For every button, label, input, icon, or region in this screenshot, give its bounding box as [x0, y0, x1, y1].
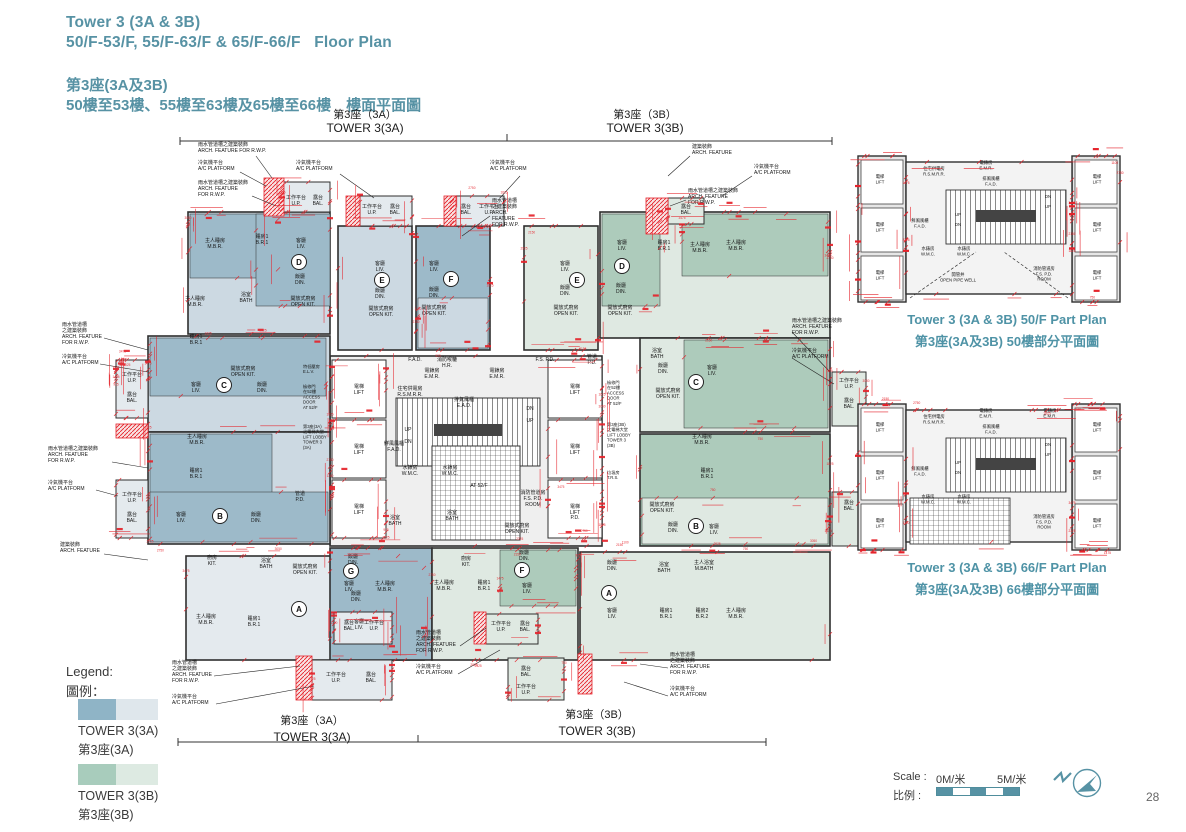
svg-text:1625: 1625: [598, 392, 605, 396]
svg-text:1825: 1825: [1068, 249, 1075, 253]
svg-text:電梯LIFT: 電梯LIFT: [876, 269, 885, 280]
svg-text:電梯LIFT: 電梯LIFT: [570, 443, 580, 456]
svg-text:雨水管道槽之建築裝飾ARCH.FEATUREFOR R.W.: 雨水管道槽之建築裝飾ARCH.FEATUREFOR R.W.P.: [492, 197, 519, 228]
bracket-top: [180, 134, 832, 145]
svg-text:睡房1B.R.1: 睡房1B.R.1: [248, 615, 261, 628]
svg-text:電梯LIFT: 電梯LIFT: [1093, 173, 1102, 184]
svg-text:DN: DN: [955, 222, 961, 227]
svg-text:925: 925: [383, 528, 389, 532]
svg-text:主人睡房M.B.R.: 主人睡房M.B.R.: [692, 433, 712, 446]
svg-text:露台BAL.: 露台BAL.: [521, 665, 532, 678]
svg-text:1475: 1475: [1104, 551, 1111, 555]
svg-text:1100: 1100: [1111, 161, 1118, 165]
svg-text:UP: UP: [527, 418, 535, 424]
svg-text:浴室BATH: 浴室BATH: [389, 514, 402, 527]
svg-text:主人睡房M.B.R.: 主人睡房M.B.R.: [205, 237, 225, 250]
svg-text:2925: 2925: [714, 542, 721, 546]
svg-text:2325: 2325: [1068, 529, 1075, 533]
svg-text:925: 925: [575, 553, 581, 557]
floor-plan-page: 主人睡房M.B.R.睡房1B.R.1客廳LIV.飯廳DIN.浴室BATH開放式廚…: [0, 0, 1186, 832]
bottom-label-tower3b-en: TOWER 3(3B): [517, 724, 677, 738]
svg-text:電梯LIFT: 電梯LIFT: [1093, 269, 1102, 280]
svg-text:2150: 2150: [1068, 232, 1075, 236]
svg-text:客廳LIV.: 客廳LIV.: [296, 237, 306, 250]
svg-text:AT 52/F: AT 52/F: [470, 483, 487, 489]
svg-text:電梯LIFT: 電梯LIFT: [876, 517, 885, 528]
svg-text:露台BAL.: 露台BAL.: [127, 391, 138, 404]
legend-swatch-tower3b-dark: [78, 764, 116, 785]
svg-text:F: F: [520, 566, 525, 575]
svg-text:管道P.D.: 管道P.D.: [295, 490, 305, 503]
legend-title-en: Legend:: [66, 664, 113, 679]
svg-text:冷氣機平台A/C PLATFORM: 冷氣機平台A/C PLATFORM: [62, 353, 99, 366]
svg-text:電梯LIFT: 電梯LIFT: [876, 221, 885, 232]
part-plan-50f-caption-zh: 第3座(3A及3B) 50樓部分平面圖: [842, 331, 1172, 350]
svg-text:住宅供電房R.S.M.R.R.: 住宅供電房R.S.M.R.R.: [923, 413, 945, 424]
svg-text:電梯LIFT: 電梯LIFT: [354, 503, 364, 516]
svg-text:客廳LIV.: 客廳LIV.: [707, 364, 717, 377]
svg-text:開放式廚房OPEN KIT.: 開放式廚房OPEN KIT.: [649, 501, 674, 514]
svg-text:開放式廚房OPEN KIT.: 開放式廚房OPEN KIT.: [607, 304, 632, 317]
svg-text:2150: 2150: [616, 543, 623, 547]
unit-circle-D: D: [292, 255, 307, 270]
scale-label-zh: 比例 :: [893, 787, 921, 803]
svg-text:客廳LIV.: 客廳LIV.: [560, 260, 570, 273]
svg-text:睡房1B.R.1: 睡房1B.R.1: [190, 333, 203, 346]
svg-text:1825: 1825: [326, 412, 333, 416]
svg-text:主人睡房M.B.R.: 主人睡房M.B.R.: [187, 433, 207, 446]
svg-text:飯廳DIN.: 飯廳DIN.: [616, 282, 626, 295]
svg-text:電錶房E.M.R.: 電錶房E.M.R.: [424, 367, 439, 380]
scale-bar-segment: [970, 788, 986, 795]
svg-text:2325: 2325: [902, 238, 909, 242]
svg-text:2750: 2750: [468, 186, 475, 190]
svg-text:建築裝飾ARCH. FEATURE: 建築裝飾ARCH. FEATURE: [60, 541, 101, 554]
svg-text:睡房1B.R.1: 睡房1B.R.1: [660, 607, 673, 620]
bottom-label-tower3a-en: TOWER 3(3A): [232, 730, 392, 744]
svg-text:露台BAL.: 露台BAL.: [844, 499, 855, 512]
svg-text:雨水管道槽之建築裝飾ARCH. FEATUREFOR R.W: 雨水管道槽之建築裝飾ARCH. FEATUREFOR R.W.P.: [198, 179, 248, 198]
svg-text:A: A: [296, 605, 302, 614]
svg-text:E: E: [379, 276, 385, 285]
svg-text:1825: 1825: [598, 523, 605, 527]
top-label-tower3b-zh: 第3座（3B）: [565, 106, 725, 122]
svg-text:主人睡房M.B.R.: 主人睡房M.B.R.: [196, 613, 216, 626]
svg-text:客廳LIV.: 客廳LIV.: [429, 260, 439, 273]
svg-text:D: D: [619, 262, 625, 271]
svg-text:2750: 2750: [913, 401, 920, 405]
top-label-tower3b-en: TOWER 3(3B): [565, 121, 725, 135]
unit-circle-A: A: [292, 602, 307, 617]
svg-text:750: 750: [743, 547, 749, 551]
svg-text:開放式廚房OPEN KIT.: 開放式廚房OPEN KIT.: [230, 365, 255, 378]
svg-text:主人睡房M.B.R.: 主人睡房M.B.R.: [726, 239, 746, 252]
unit-circle-F: F: [515, 563, 530, 578]
scale-bar-segment: [1003, 788, 1019, 795]
svg-text:飯廳DIN.: 飯廳DIN.: [607, 559, 617, 572]
svg-text:電梯LIFT: 電梯LIFT: [1093, 421, 1102, 432]
svg-text:電梯LIFT: 電梯LIFT: [876, 173, 885, 184]
svg-text:電梯LIFT: 電梯LIFT: [1093, 221, 1102, 232]
svg-text:G: G: [348, 567, 354, 576]
svg-text:冷氣機平台A/C PLATFORM: 冷氣機平台A/C PLATFORM: [490, 159, 527, 172]
svg-text:客廳LIV.: 客廳LIV.: [709, 523, 719, 536]
svg-text:750: 750: [758, 437, 764, 441]
page-title-en-line2: 50/F-53/F, 55/F-63/F & 65/F-66/F Floor P…: [66, 34, 392, 52]
svg-text:飯廳DIN.: 飯廳DIN.: [658, 362, 668, 375]
svg-text:冷氣機平台A/C PLATFORM: 冷氣機平台A/C PLATFORM: [198, 159, 235, 172]
unit-circle-D: D: [615, 259, 630, 274]
svg-text:2325: 2325: [308, 677, 315, 681]
unit-circle-C: C: [217, 378, 232, 393]
svg-text:睡房2B.R.2: 睡房2B.R.2: [696, 607, 709, 620]
svg-text:UP: UP: [1045, 452, 1051, 457]
part-plan-50f-caption: Tower 3 (3A & 3B) 50/F Part Plan 第3座(3A及…: [842, 312, 1172, 350]
svg-text:睡房1B.R.1: 睡房1B.R.1: [256, 233, 269, 246]
svg-text:1475: 1475: [824, 529, 831, 533]
scale-bar-segment: [937, 788, 953, 795]
svg-text:E: E: [574, 276, 580, 285]
svg-text:2750: 2750: [157, 549, 164, 553]
svg-text:客廳LIV.: 客廳LIV.: [344, 580, 354, 593]
unit-circle-G: G: [344, 564, 359, 579]
svg-text:2925: 2925: [520, 247, 527, 251]
svg-text:1475: 1475: [144, 362, 151, 366]
svg-text:2925: 2925: [146, 539, 153, 543]
svg-text:3050: 3050: [810, 539, 817, 543]
svg-text:冷氣機平台A/C PLATFORM: 冷氣機平台A/C PLATFORM: [48, 479, 85, 492]
svg-text:水錶房W.M.C.: 水錶房W.M.C.: [957, 493, 971, 504]
svg-text:露台BAL.: 露台BAL.: [313, 194, 324, 207]
unit-circle-E: E: [375, 273, 390, 288]
svg-text:飯廳DIN.: 飯廳DIN.: [560, 284, 570, 297]
svg-text:客廳LIV.: 客廳LIV.: [617, 239, 627, 252]
svg-text:F.S. P.D.: F.S. P.D.: [535, 357, 554, 363]
svg-text:F.A.D.: F.A.D.: [408, 357, 422, 363]
svg-text:750: 750: [561, 661, 567, 665]
svg-text:2325: 2325: [260, 329, 267, 333]
svg-text:925: 925: [435, 354, 441, 358]
svg-text:冷氣機平台A/C PLATFORM: 冷氣機平台A/C PLATFORM: [172, 693, 209, 706]
svg-text:廚房KIT.: 廚房KIT.: [461, 555, 471, 568]
svg-text:3050: 3050: [184, 216, 191, 220]
svg-text:主人睡房M.B.R.: 主人睡房M.B.R.: [375, 580, 395, 593]
unit-circle-C: C: [689, 375, 704, 390]
legend-title-zh: 圖例：: [66, 681, 105, 700]
svg-text:客廳LIV.: 客廳LIV.: [354, 618, 364, 631]
page-number: 28: [1146, 790, 1159, 804]
svg-text:飯廳DIN.: 飯廳DIN.: [295, 273, 305, 286]
svg-text:客廳LIV.: 客廳LIV.: [191, 381, 201, 394]
svg-text:冷氣機平台A/C PLATFORM: 冷氣機平台A/C PLATFORM: [754, 163, 791, 176]
svg-text:750: 750: [710, 488, 716, 492]
svg-text:垃圾房T.R.S.: 垃圾房T.R.S.: [607, 469, 620, 480]
svg-text:開放式廚房OPEN KIT.: 開放式廚房OPEN KIT.: [655, 387, 680, 400]
legend-label-tower3b-zh: 第3座(3B): [78, 804, 134, 823]
svg-text:2925: 2925: [470, 663, 477, 667]
svg-text:飯廳DIN.: 飯廳DIN.: [257, 381, 267, 394]
svg-text:廚房KIT.: 廚房KIT.: [207, 554, 217, 567]
svg-text:1100: 1100: [327, 474, 334, 478]
legend-label-tower3a-zh: 第3座(3A): [78, 739, 134, 758]
north-compass-icon: [1054, 770, 1101, 797]
svg-text:電梯LIFT: 電梯LIFT: [1093, 517, 1102, 528]
svg-text:1100: 1100: [113, 366, 120, 370]
page-title-zh-line1: 第3座(3A及3B): [66, 74, 168, 95]
svg-text:露台BAL.: 露台BAL.: [844, 397, 855, 410]
svg-text:電梯LIFT: 電梯LIFT: [354, 383, 364, 396]
svg-text:睡房1B.R.1: 睡房1B.R.1: [701, 467, 714, 480]
svg-text:1100: 1100: [331, 621, 338, 625]
legend-swatch-tower3b: [78, 764, 158, 785]
scale-bar-segment: [986, 788, 1002, 795]
part-plan-50f: 電梯LIFT電梯LIFT電梯LIFT電梯LIFT電梯LIFT電梯LIFT住宅供電…: [849, 148, 1127, 308]
legend-swatch-tower3a-light: [116, 699, 158, 720]
svg-text:主人睡房M.B.R.: 主人睡房M.B.R.: [690, 241, 710, 254]
scale-start-value: 0M/米: [936, 771, 965, 787]
svg-text:P.D.: P.D.: [570, 515, 579, 521]
top-label-tower3a-en: TOWER 3(3A): [285, 121, 445, 135]
svg-text:UP: UP: [955, 212, 961, 217]
svg-text:DN: DN: [404, 439, 412, 445]
svg-text:1475: 1475: [496, 576, 503, 580]
svg-text:3475: 3475: [1068, 501, 1075, 505]
part-plan-66f-caption-en: Tower 3 (3A & 3B) 66/F Part Plan: [842, 560, 1172, 575]
svg-text:雨水管道槽之建築裝飾ARCH. FEATUREFOR R.W: 雨水管道槽之建築裝飾ARCH. FEATUREFOR R.W.P.: [48, 445, 98, 464]
svg-text:雨水管道槽之建築裝飾ARCH. FEATUREFOR R.W: 雨水管道槽之建築裝飾ARCH. FEATUREFOR R.W.P.: [792, 317, 842, 336]
scale-end-value: 5M/米: [997, 771, 1026, 787]
svg-text:浴室BATH: 浴室BATH: [446, 509, 459, 522]
svg-text:第3座(3B)之電梯大堂LIFT LOBBYTOWER 3(: 第3座(3B)之電梯大堂LIFT LOBBYTOWER 3(3B): [607, 421, 631, 448]
svg-text:露台BAL.: 露台BAL.: [344, 619, 355, 632]
svg-text:開放式廚房OPEN KIT.: 開放式廚房OPEN KIT.: [553, 304, 578, 317]
svg-text:電梯LIFT: 電梯LIFT: [354, 443, 364, 456]
svg-text:水錶房W.M.C.: 水錶房W.M.C.: [402, 464, 418, 477]
top-label-tower3a-zh: 第3座（3A）: [285, 106, 445, 122]
svg-text:2150: 2150: [514, 552, 521, 556]
svg-text:電錶房E.M.R.: 電錶房E.M.R.: [489, 367, 504, 380]
scale-label-en: Scale :: [893, 771, 927, 783]
svg-text:B: B: [217, 512, 223, 521]
svg-text:B: B: [693, 522, 699, 531]
svg-text:電梯LIFT: 電梯LIFT: [876, 421, 885, 432]
svg-text:2750: 2750: [326, 458, 333, 462]
svg-text:UP: UP: [955, 460, 961, 465]
part-plan-66f: 電梯LIFT電梯LIFT電梯LIFT電梯LIFT電梯LIFT電梯LIFT住宅供電…: [855, 397, 1122, 555]
svg-text:1625: 1625: [205, 331, 212, 335]
svg-text:3475: 3475: [1068, 201, 1075, 205]
svg-text:客廳LIV.: 客廳LIV.: [607, 607, 617, 620]
svg-text:電梯LIFT: 電梯LIFT: [876, 469, 885, 480]
part-plan-66f-caption: Tower 3 (3A & 3B) 66/F Part Plan 第3座(3A及…: [842, 560, 1172, 598]
svg-text:雨水管道槽之建築裝飾ARCH. FEATURE FOR R.: 雨水管道槽之建築裝飾ARCH. FEATURE FOR R.W.P.: [198, 141, 266, 154]
svg-text:露台BAL.: 露台BAL.: [461, 203, 472, 216]
svg-text:水錶房W.M.C.: 水錶房W.M.C.: [442, 464, 458, 477]
svg-text:露台BAL.: 露台BAL.: [366, 671, 377, 684]
svg-text:電梯LIFT: 電梯LIFT: [570, 383, 580, 396]
svg-text:建築裝飾ARCH. FEATURE: 建築裝飾ARCH. FEATURE: [692, 143, 733, 156]
svg-text:電錶房E.M.R.: 電錶房E.M.R.: [979, 407, 992, 418]
svg-text:客廳LIV.: 客廳LIV.: [375, 260, 385, 273]
svg-text:冷氣機平台A/C PLATFORM: 冷氣機平台A/C PLATFORM: [296, 159, 333, 172]
svg-text:3475: 3475: [678, 216, 685, 220]
legend-swatch-tower3b-light: [116, 764, 158, 785]
bottom-label-tower3a-zh: 第3座（3A）: [232, 712, 392, 728]
svg-text:冷氣機平台A/C PLATFORM: 冷氣機平台A/C PLATFORM: [670, 685, 707, 698]
svg-text:浴室BATH: 浴室BATH: [260, 557, 273, 570]
svg-text:開放式廚房OPEN KIT.: 開放式廚房OPEN KIT.: [504, 522, 529, 535]
svg-text:住宅供電房R.S.M.R.R.: 住宅供電房R.S.M.R.R.: [923, 165, 945, 176]
part-plan-50f-caption-en: Tower 3 (3A & 3B) 50/F Part Plan: [842, 312, 1172, 327]
svg-text:3475: 3475: [119, 350, 126, 354]
svg-text:冷氣機平台A/C PLATFORM: 冷氣機平台A/C PLATFORM: [416, 663, 453, 676]
svg-text:水錶房W.M.C.: 水錶房W.M.C.: [957, 245, 971, 256]
svg-text:DN: DN: [526, 406, 534, 412]
svg-text:C: C: [221, 381, 227, 390]
svg-text:飯廳DIN.: 飯廳DIN.: [429, 286, 439, 299]
svg-text:主人睡房M.B.R.: 主人睡房M.B.R.: [185, 295, 205, 308]
svg-text:住宅供電房R.S.M.R.R.: 住宅供電房R.S.M.R.R.: [397, 385, 422, 398]
svg-text:F: F: [449, 275, 454, 284]
svg-text:飯廳DIN.: 飯廳DIN.: [375, 287, 385, 300]
page-title-en-line1: Tower 3 (3A & 3B): [66, 14, 200, 32]
scale-bar: [936, 787, 1020, 796]
svg-text:露台BAL.: 露台BAL.: [520, 620, 531, 633]
svg-text:開放式廚房OPEN KIT.: 開放式廚房OPEN KIT.: [421, 304, 446, 317]
svg-text:1825: 1825: [144, 425, 151, 429]
svg-text:2150: 2150: [705, 338, 712, 342]
svg-text:2750: 2750: [581, 529, 588, 533]
svg-text:2150: 2150: [412, 320, 419, 324]
svg-text:DN: DN: [1045, 194, 1051, 199]
svg-text:DN: DN: [955, 470, 961, 475]
scale-bar-segment: [953, 788, 969, 795]
legend-swatch-tower3a: [78, 699, 158, 720]
svg-text:水錶房W.M.C.: 水錶房W.M.C.: [921, 493, 935, 504]
svg-text:水錶房W.M.C.: 水錶房W.M.C.: [921, 245, 935, 256]
svg-text:主人睡房M.B.R.: 主人睡房M.B.R.: [434, 579, 454, 592]
svg-text:2750: 2750: [1116, 171, 1123, 175]
svg-text:1825: 1825: [1043, 412, 1050, 416]
svg-text:客廳LIV.: 客廳LIV.: [522, 582, 532, 595]
svg-text:3475: 3475: [182, 569, 189, 573]
svg-text:飯廳DIN.: 飯廳DIN.: [668, 521, 678, 534]
svg-text:飯廳DIN.: 飯廳DIN.: [251, 511, 261, 524]
svg-text:DN: DN: [1045, 442, 1051, 447]
svg-text:1625: 1625: [500, 191, 507, 195]
unit-circle-A: A: [602, 586, 617, 601]
svg-text:3050: 3050: [862, 379, 869, 383]
part-plan-66f-caption-zh: 第3座(3A及3B) 66樓部分平面圖: [842, 579, 1172, 598]
svg-text:露台BAL.: 露台BAL.: [127, 511, 138, 524]
bottom-label-tower3b-zh: 第3座（3B）: [517, 706, 677, 722]
svg-text:露台BAL.: 露台BAL.: [390, 203, 401, 216]
svg-text:2325: 2325: [516, 537, 523, 541]
legend-swatch-tower3a-dark: [78, 699, 116, 720]
svg-text:浴室BATH: 浴室BATH: [240, 291, 253, 304]
svg-text:D: D: [296, 258, 302, 267]
svg-text:浴室BATH: 浴室BATH: [651, 347, 664, 360]
legend-label-tower3b-en: TOWER 3(3B): [78, 789, 158, 803]
svg-text:750: 750: [1090, 296, 1096, 300]
unit-circle-F: F: [444, 272, 459, 287]
svg-text:浴室BATH: 浴室BATH: [658, 561, 671, 574]
svg-text:C: C: [693, 378, 699, 387]
unit-circle-B: B: [213, 509, 228, 524]
svg-text:排氣風櫃E.A.D.: 排氣風櫃E.A.D.: [454, 396, 474, 409]
svg-text:開放式廚房OPEN KIT.: 開放式廚房OPEN KIT.: [290, 295, 315, 308]
svg-text:開放式廚房OPEN KIT.: 開放式廚房OPEN KIT.: [368, 305, 393, 318]
svg-text:2150: 2150: [528, 231, 535, 235]
svg-text:A: A: [606, 589, 612, 598]
legend-label-tower3a-en: TOWER 3(3A): [78, 724, 158, 738]
svg-text:客廳LIV.: 客廳LIV.: [176, 511, 186, 524]
svg-text:睡房1B.R.1: 睡房1B.R.1: [478, 579, 491, 592]
svg-text:主人睡房M.B.R.: 主人睡房M.B.R.: [726, 607, 746, 620]
svg-text:2750: 2750: [428, 573, 435, 577]
svg-text:3050: 3050: [275, 547, 282, 551]
svg-text:UP: UP: [1045, 204, 1051, 209]
svg-text:開放式廚房OPEN KIT.: 開放式廚房OPEN KIT.: [292, 563, 317, 576]
svg-text:電梯LIFT: 電梯LIFT: [1093, 469, 1102, 480]
svg-text:2150: 2150: [882, 397, 889, 401]
unit-circle-B: B: [689, 519, 704, 534]
main-floor-plan: 主人睡房M.B.R.睡房1B.R.1客廳LIV.飯廳DIN.浴室BATH開放式廚…: [116, 178, 866, 700]
svg-text:925: 925: [827, 369, 833, 373]
svg-text:3475: 3475: [557, 485, 564, 489]
svg-text:3050: 3050: [598, 404, 605, 408]
svg-text:睡房1B.R.1: 睡房1B.R.1: [190, 467, 203, 480]
svg-text:雨水管道槽之建築裝飾ARCH. FEATUREFOR R.W: 雨水管道槽之建築裝飾ARCH. FEATUREFOR R.W.P.: [62, 321, 103, 346]
svg-text:雨水管道槽之建築裝飾ARCH. FEATUREFOR R.W: 雨水管道槽之建築裝飾ARCH. FEATUREFOR R.W.P.: [172, 659, 213, 684]
unit-circle-E: E: [570, 273, 585, 288]
svg-text:主人浴室M.BATH: 主人浴室M.BATH: [694, 559, 714, 572]
svg-text:1825: 1825: [826, 462, 833, 466]
svg-text:UP: UP: [405, 427, 413, 433]
